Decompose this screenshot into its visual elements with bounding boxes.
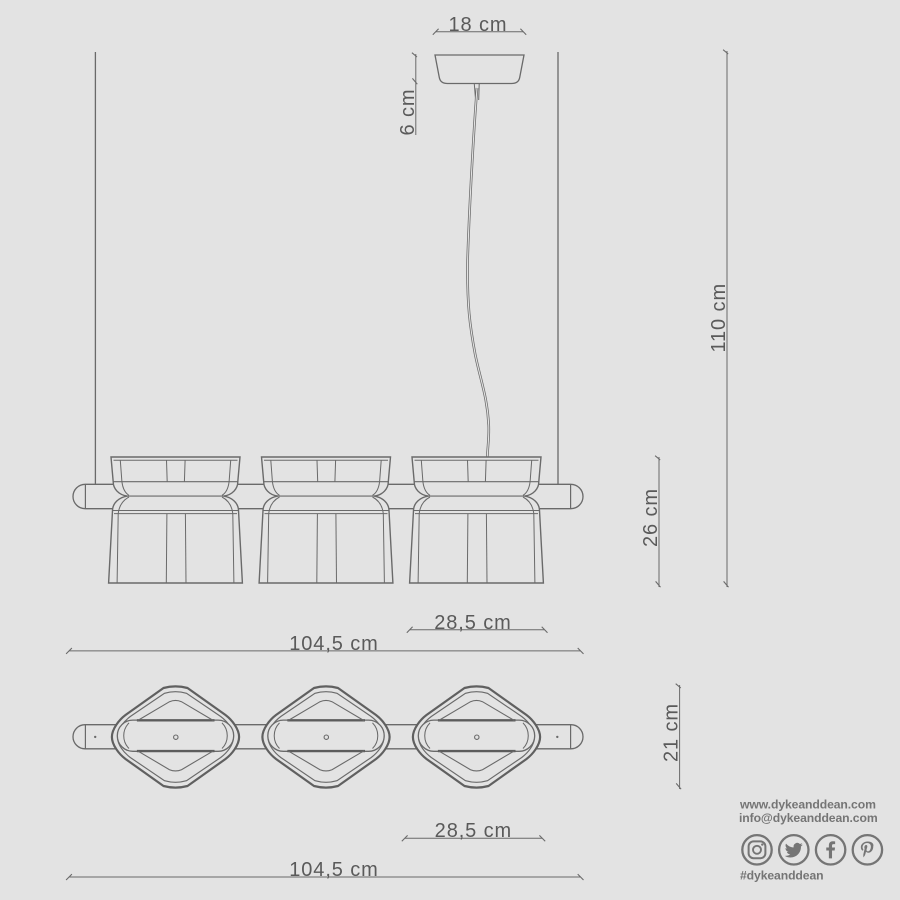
svg-text:info@dykeanddean.com: info@dykeanddean.com xyxy=(739,811,878,825)
svg-text:110 cm: 110 cm xyxy=(708,283,730,353)
svg-text:18 cm: 18 cm xyxy=(449,14,508,36)
svg-text:6 cm: 6 cm xyxy=(397,89,419,136)
svg-text:26 cm: 26 cm xyxy=(640,488,662,547)
svg-text:104,5 cm: 104,5 cm xyxy=(289,859,378,881)
svg-text:104,5 cm: 104,5 cm xyxy=(289,633,378,655)
svg-text:www.dykeanddean.com: www.dykeanddean.com xyxy=(739,798,876,812)
svg-text:21 cm: 21 cm xyxy=(661,703,683,762)
svg-text:28,5 cm: 28,5 cm xyxy=(435,820,512,842)
svg-text:28,5 cm: 28,5 cm xyxy=(434,612,511,634)
svg-text:#dykeanddean: #dykeanddean xyxy=(740,869,823,883)
